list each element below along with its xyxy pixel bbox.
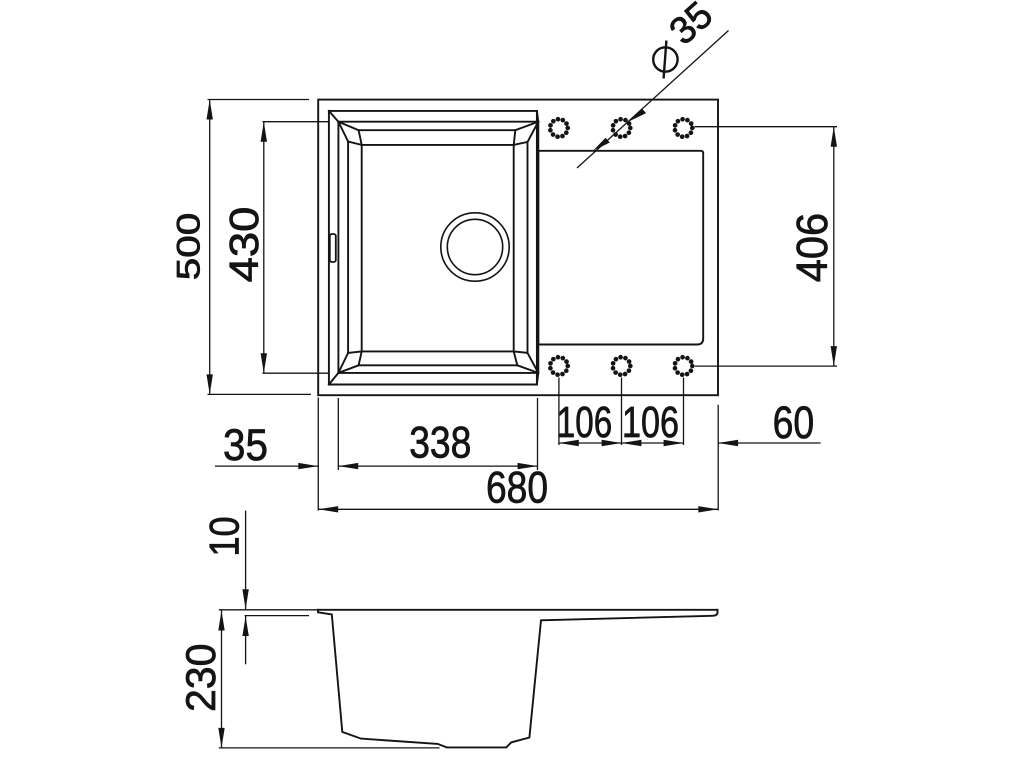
svg-text:35: 35 (223, 421, 268, 470)
svg-text:406: 406 (789, 213, 837, 282)
svg-text:500: 500 (169, 213, 206, 281)
svg-text:338: 338 (409, 418, 471, 467)
svg-text:106: 106 (622, 399, 679, 447)
svg-text:230: 230 (177, 644, 224, 713)
svg-text:106: 106 (557, 399, 612, 447)
svg-text:430: 430 (221, 207, 267, 283)
svg-text:60: 60 (773, 397, 815, 448)
svg-text:680: 680 (486, 464, 548, 513)
svg-text:10: 10 (201, 516, 248, 556)
